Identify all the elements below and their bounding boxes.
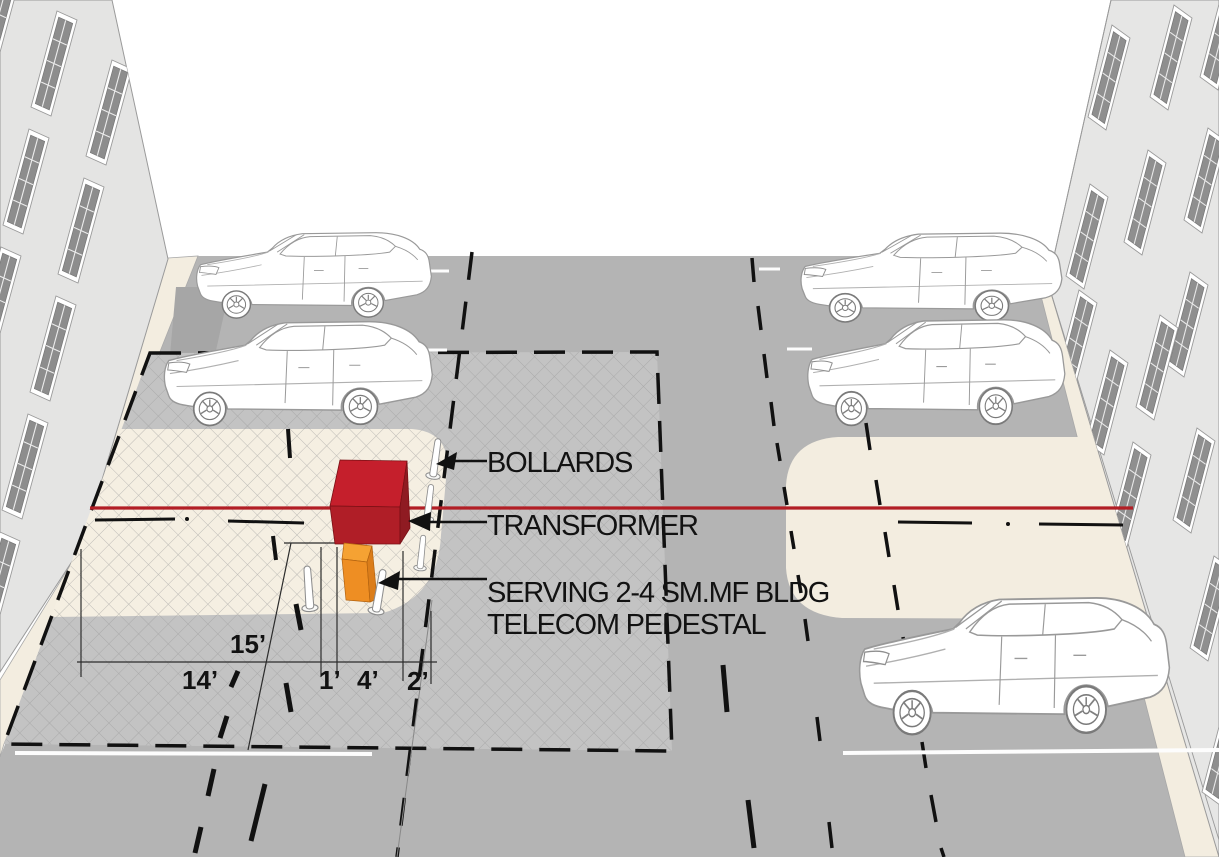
svg-text:BOLLARDS: BOLLARDS [487,447,633,479]
svg-text:1’: 1’ [319,665,341,695]
svg-text:14’: 14’ [182,665,218,695]
svg-text:2’: 2’ [407,666,429,696]
svg-text:TRANSFORMER: TRANSFORMER [487,510,698,542]
svg-text:SERVING 2-4 SM.MF BLDG: SERVING 2-4 SM.MF BLDG [487,577,829,609]
svg-text:15’: 15’ [230,629,266,659]
svg-text:4’: 4’ [357,665,379,695]
svg-text:TELECOM PEDESTAL: TELECOM PEDESTAL [487,609,766,641]
